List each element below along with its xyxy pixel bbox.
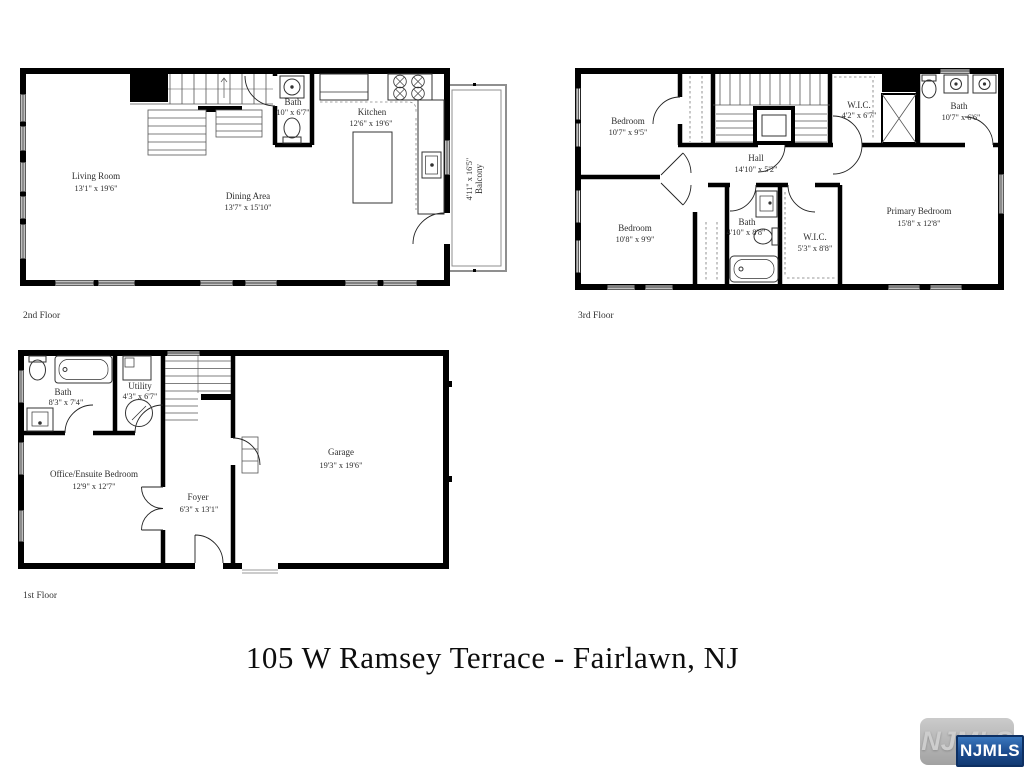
room-label: Bath [951,101,968,111]
room-dims: 5'3" x 8'8" [798,244,833,253]
room-label: W.I.C. [847,100,870,110]
room-dims: 12'9" x 12'7" [73,482,116,491]
room-dims: 4'3" x 6'7" [123,392,158,401]
room-dims: 10'7" x 6'6" [942,113,981,122]
room-label: Hall [748,153,764,163]
room-dims: 10'7" x 9'5" [609,128,648,137]
shower-icon [882,94,916,143]
room-label: Balcony [474,164,484,194]
njmls-badge-logo: NJMLS [956,735,1024,767]
room-label: Living Room [72,171,120,181]
room-label: Bedroom [618,223,652,233]
room-label: W.I.C. [803,232,826,242]
room-label: Kitchen [358,107,387,117]
room-dims: 10'8" x 9'9" [616,235,655,244]
room-dims: 14'10" x 5'2" [735,165,778,174]
room-label: Dining Area [226,191,270,201]
room-dims: 4'10" x 8'8" [727,228,766,237]
room-label: Garage [328,447,354,457]
wall-mass [130,70,168,102]
room-dims: 4'11" x 16'5" [465,158,474,201]
floor-plan-sheet: Living Room 13'1" x 19'6" Dining Area 13… [0,0,1024,767]
page-title: 105 W Ramsey Terrace - Fairlawn, NJ [0,640,985,676]
room-dims: 6'3" x 13'1" [180,505,219,514]
floor-label-2nd: 2nd Floor [23,311,60,321]
floor-label-3rd: 3rd Floor [578,311,614,321]
wall-tick [448,381,452,387]
floor-label-1st: 1st Floor [23,591,57,601]
steps [242,437,258,473]
elevator-shaft [755,108,793,143]
floor-plan-3rd-floor: Bedroom 10'7" x 9'5" Bedroom 10'8" x 9'9… [570,64,1010,296]
room-dims: 15'8" x 12'8" [898,219,941,228]
room-label: Foyer [188,492,209,502]
wall-tick [448,476,452,482]
duct-mass [882,72,916,92]
garage-door [242,563,278,573]
room-dims: 4'2" x 6'7" [842,111,877,120]
room-label: Bath [739,217,756,227]
stair-wall [201,394,233,400]
room-dims: 13'7" x 15'10" [224,203,271,212]
window [20,94,26,259]
floor-plan-1st-floor: Bath 8'3" x 7'4" Utility 4'3" x 6'7" Off… [15,345,455,577]
room-dims: 13'1" x 19'6" [75,184,118,193]
room-label: Office/Ensuite Bedroom [50,469,138,479]
room-dims: 10" x 6'7" [276,108,309,117]
room-label: Bedroom [611,116,645,126]
floor-plan-2nd-floor: Living Room 13'1" x 19'6" Dining Area 13… [18,64,512,294]
room-label: Bath [285,97,302,107]
room-label: Bath [55,387,72,397]
room-label: Primary Bedroom [887,206,952,216]
room-dims: 8'3" x 7'4" [49,398,84,407]
room-dims: 12'6" x 19'6" [350,119,393,128]
front-door [195,563,223,570]
njmls-badge-text: NJMLS [960,741,1020,761]
room-dims: 19'3" x 19'6" [320,461,363,470]
room-label: Utility [128,381,152,391]
